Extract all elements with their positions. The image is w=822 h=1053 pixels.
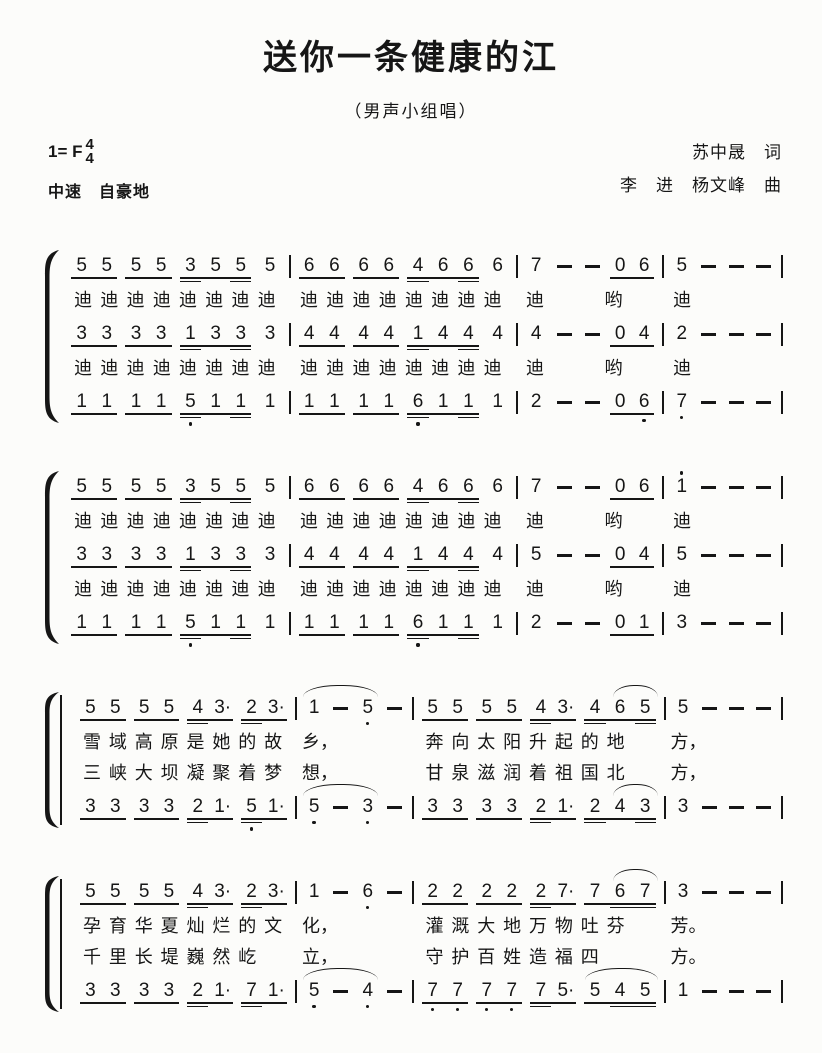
- lyric-syllable: [548, 287, 574, 313]
- beat-group: [725, 612, 748, 634]
- note: 2: [499, 881, 524, 903]
- note: 4: [185, 697, 210, 719]
- beat-group: 55: [132, 697, 182, 719]
- beam-line: [230, 349, 251, 351]
- duration-dash: [725, 255, 748, 277]
- beam-line: [635, 723, 656, 725]
- lyric-syllable: 迪: [522, 355, 548, 381]
- note: 5: [123, 476, 148, 498]
- lyric-syllable: 巍: [183, 944, 209, 970]
- beat-group: 133: [178, 323, 254, 345]
- note: 5: [420, 697, 445, 719]
- note: 4: [431, 323, 456, 345]
- beat-group: [697, 612, 720, 634]
- beat-group: 43·: [185, 697, 235, 719]
- beat-group: 66: [297, 255, 347, 277]
- dash-bar: [729, 990, 744, 993]
- beat-group: 5: [670, 255, 693, 277]
- duration-dash: [698, 881, 721, 903]
- note: 1: [203, 612, 228, 634]
- duration-dash: [552, 391, 576, 413]
- measure: 11116111: [292, 612, 516, 634]
- note: 4: [632, 544, 656, 566]
- beam-line: [407, 413, 479, 415]
- beat-group: 5: [257, 255, 282, 277]
- dash-bar: [585, 333, 600, 336]
- note: 2: [185, 796, 210, 818]
- measure: 5: [665, 255, 780, 277]
- beat-group: 06: [608, 255, 656, 277]
- measure: 333321·243: [415, 796, 663, 818]
- beam-line: [476, 818, 522, 820]
- beat-group: 44: [351, 323, 401, 345]
- beam-line: [241, 818, 287, 820]
- beam-line: [299, 634, 345, 636]
- performance-note: （男声小组唱）: [38, 97, 784, 122]
- beat-group: [752, 881, 775, 903]
- note: 3: [69, 544, 94, 566]
- lyric-syllable: [695, 355, 721, 381]
- barline: [516, 255, 518, 278]
- lyric-syllable: 她: [208, 729, 234, 755]
- beat-group: 22: [474, 881, 524, 903]
- duration-dash: [552, 544, 576, 566]
- note: 5: [203, 255, 228, 277]
- duration-dash: [752, 612, 775, 634]
- note: 6: [405, 612, 430, 634]
- beat-group: 55: [123, 255, 173, 277]
- barline: [781, 612, 783, 635]
- barline: [289, 391, 291, 414]
- lyric-syllable: 迪: [201, 576, 227, 602]
- measure: 206: [519, 391, 661, 413]
- lyric-syllable: 迪: [522, 508, 548, 534]
- beat-group: 611: [405, 612, 481, 634]
- beam-line: [80, 1002, 126, 1004]
- note: 3: [94, 544, 119, 566]
- lyric-syllable: [380, 760, 406, 786]
- lyric-syllable: 大: [131, 760, 157, 786]
- measure: 3: [665, 612, 780, 634]
- lyric-syllable: [722, 287, 748, 313]
- measure: 333321·51·: [73, 796, 294, 818]
- measure: 迪哟: [516, 355, 659, 381]
- beam-line: [476, 903, 522, 905]
- time-denominator: 4: [86, 152, 94, 166]
- note: 5: [633, 980, 658, 1002]
- beat-group: [697, 255, 720, 277]
- lyric-syllable: 太: [473, 729, 499, 755]
- system-start-rule: [60, 879, 62, 1009]
- lyric-syllable: 迪: [480, 355, 506, 381]
- beat-group: 355: [178, 476, 254, 498]
- note: 3: [103, 796, 128, 818]
- measure: 555543·23·: [73, 697, 294, 719]
- note: 4: [351, 323, 376, 345]
- note: 3: [633, 796, 658, 818]
- lyric-syllable: 万: [525, 913, 551, 939]
- note: 7: [499, 980, 524, 1002]
- duration-dash: [383, 980, 406, 1002]
- dash-bar: [702, 806, 717, 809]
- lyric-syllable: 吐: [577, 913, 603, 939]
- lyric-syllable: 迪: [401, 576, 427, 602]
- note: 1: [297, 612, 322, 634]
- dash-bar: [729, 333, 744, 336]
- measure: 方。: [664, 944, 780, 970]
- lyric-syllable: [627, 576, 653, 602]
- beam-line: [241, 719, 287, 721]
- note: 1: [322, 612, 347, 634]
- beam-line: [584, 1002, 655, 1004]
- dash-bar: [333, 707, 348, 710]
- beam-line: [241, 1002, 287, 1004]
- note: 7: [474, 980, 499, 1002]
- note: 5: [257, 476, 282, 498]
- beat-group: 51·: [239, 796, 289, 818]
- key-label: 1= F: [48, 142, 83, 162]
- beat-group: [752, 323, 775, 345]
- lyric-syllable: 迪: [427, 508, 453, 534]
- beam-line: [584, 719, 655, 721]
- beam-line: [407, 349, 428, 351]
- dash-bar: [387, 891, 402, 894]
- note: 5: [69, 476, 94, 498]
- beam-line: [407, 281, 428, 283]
- notes-row: 33331333444414445045: [64, 539, 784, 571]
- beam-line: [180, 638, 201, 640]
- measure: 灌溉大地万物吐芬: [416, 913, 661, 939]
- duration-dash: [725, 881, 748, 903]
- note: 6: [608, 697, 633, 719]
- barline: [412, 796, 414, 819]
- note: 4: [405, 255, 430, 277]
- note: 1: [485, 612, 510, 634]
- beam-line: [530, 818, 576, 820]
- beam-line: [180, 281, 201, 283]
- lyric-syllable: 哟: [601, 355, 627, 381]
- measure: 迪: [663, 287, 780, 313]
- beam-line: [407, 570, 428, 572]
- duration-dash: [580, 391, 604, 413]
- measure: 迪哟: [516, 508, 659, 534]
- note: 1: [149, 612, 174, 634]
- beat-group: [698, 980, 721, 1002]
- beam-line: [241, 723, 262, 725]
- note: 3: [123, 323, 148, 345]
- lyric-syllable: 迪: [149, 287, 175, 313]
- note: 1: [257, 612, 282, 634]
- lyric-syllable: 四: [577, 944, 603, 970]
- barline: [295, 881, 297, 904]
- lyric-syllable: 芬: [603, 913, 629, 939]
- beat-group: 66: [351, 255, 401, 277]
- duration-dash: [698, 980, 721, 1002]
- note: 1: [303, 697, 326, 719]
- beat-group: 3: [672, 881, 695, 903]
- lyric-syllable: 迪: [480, 287, 506, 313]
- duration-dash: [697, 323, 720, 345]
- composer-credit: 李 进 杨文峰 曲: [620, 169, 782, 202]
- lyric-syllable: 迪: [122, 287, 148, 313]
- measure: 706: [519, 476, 661, 498]
- beam-line: [71, 498, 117, 500]
- beat-group: 6: [356, 881, 379, 903]
- dash-bar: [729, 554, 744, 557]
- measure: 雪域高原是她的故: [73, 729, 292, 755]
- barline: [781, 980, 783, 1003]
- note: 5: [356, 697, 379, 719]
- note: 3: [94, 323, 119, 345]
- beat-group: 5: [672, 697, 695, 719]
- beam-line: [180, 634, 252, 636]
- beat-group: 3: [356, 796, 379, 818]
- lyric-syllable: [627, 287, 653, 313]
- key-tempo-block: 1= F 4 4 中速 自豪地: [48, 138, 150, 202]
- beat-group: [752, 544, 775, 566]
- beam-line: [80, 903, 126, 905]
- measure: 迪迪迪迪迪迪迪迪: [290, 355, 512, 381]
- beat-group: 11: [297, 391, 347, 413]
- lyric-syllable: 迪: [96, 576, 122, 602]
- note: 5: [178, 391, 203, 413]
- lyric-syllable: 向: [447, 729, 473, 755]
- lyric-syllable: 方，: [670, 760, 696, 786]
- dash-bar: [756, 486, 771, 489]
- beat-group: 55: [69, 476, 119, 498]
- barline: [664, 796, 666, 819]
- note: 4: [456, 544, 481, 566]
- beat-group: 466: [405, 255, 481, 277]
- note: 2: [474, 881, 499, 903]
- voice-bracket-icon: [38, 471, 60, 644]
- beam-line: [610, 907, 656, 909]
- system: 55553555666646667061迪迪迪迪迪迪迪迪迪迪迪迪迪迪迪迪迪哟迪3…: [38, 471, 784, 644]
- measure: 迪哟: [516, 287, 659, 313]
- lyric-syllable: 乡，: [302, 729, 328, 755]
- beat-group: 55: [78, 697, 128, 719]
- note: 6: [351, 476, 376, 498]
- beam-line: [187, 719, 233, 721]
- dash-bar: [585, 265, 600, 268]
- note: 1: [149, 391, 174, 413]
- note: 1: [351, 391, 376, 413]
- lyric-syllable: 方。: [670, 944, 696, 970]
- lyric-syllable: 迪: [227, 508, 253, 534]
- note: 1: [123, 612, 148, 634]
- lyric-syllable: [722, 944, 748, 970]
- note: 3: [132, 796, 157, 818]
- duration-dash: [552, 323, 576, 345]
- barline: [781, 323, 783, 346]
- lyric-syllable: [629, 760, 655, 786]
- lyric-syllable: 化，: [302, 913, 328, 939]
- note: 1: [69, 612, 94, 634]
- beam-line: [584, 818, 655, 820]
- note: 1: [94, 391, 119, 413]
- system-content: 555543·23·16222227·7673孕育华夏灿烂的文化，灌溉大地万物吐…: [73, 876, 784, 1012]
- barline: [289, 612, 291, 635]
- beat-group: [725, 697, 748, 719]
- measure: 奔向太阳升起的地: [416, 729, 661, 755]
- note: 2: [420, 881, 445, 903]
- beat-group: 04: [608, 323, 656, 345]
- dash-bar: [557, 486, 572, 489]
- measure: 迪: [663, 355, 780, 381]
- beat-group: 465: [582, 697, 657, 719]
- duration-dash: [552, 255, 576, 277]
- lyric-syllable: [696, 913, 722, 939]
- beam-line: [299, 345, 345, 347]
- duration-dash: [725, 697, 748, 719]
- beat-group: [725, 796, 748, 818]
- lyric-syllable: 迪: [122, 355, 148, 381]
- lyric-syllable: 迪: [96, 287, 122, 313]
- lyric-syllable: 故: [260, 729, 286, 755]
- dash-bar: [585, 401, 600, 404]
- note: 4: [632, 323, 656, 345]
- note: 3: [78, 980, 103, 1002]
- lyric-syllable: [574, 355, 600, 381]
- note: 3·: [553, 697, 578, 719]
- measure: 1: [665, 476, 780, 498]
- beat-group: 44: [297, 544, 347, 566]
- beat-group: 33: [78, 796, 128, 818]
- beat-group: 43·: [528, 697, 578, 719]
- lyric-syllable: [380, 729, 406, 755]
- barline: [781, 544, 783, 567]
- measure: 甘泉滋润着祖国北: [416, 760, 661, 786]
- lyric-syllable: [695, 287, 721, 313]
- beat-group: 5: [257, 476, 282, 498]
- duration-dash: [725, 980, 748, 1002]
- barline: [664, 697, 666, 720]
- dash-bar: [702, 990, 717, 993]
- note: 1: [228, 612, 253, 634]
- note: 1·: [264, 796, 289, 818]
- note: 1: [303, 881, 326, 903]
- note: 7: [633, 881, 658, 903]
- rest: 0: [608, 255, 632, 277]
- lyric-syllable: 迪: [70, 287, 96, 313]
- beam-line: [610, 566, 654, 568]
- dash-bar: [701, 333, 716, 336]
- measure: 53: [298, 796, 411, 818]
- beam-line: [187, 1006, 208, 1008]
- beam-line: [230, 281, 251, 283]
- lyric-syllable: [695, 508, 721, 534]
- beat-group: 5: [303, 980, 326, 1002]
- beat-group: 71·: [239, 980, 289, 1002]
- note: 3: [499, 796, 524, 818]
- note: 2: [582, 796, 607, 818]
- duration-dash: [725, 544, 748, 566]
- measure: 55553555: [64, 476, 288, 498]
- beam-line: [476, 719, 522, 721]
- beat-group: [725, 476, 748, 498]
- note: 3: [672, 881, 695, 903]
- beam-line: [530, 822, 551, 824]
- lyrics-row: 迪迪迪迪迪迪迪迪迪迪迪迪迪迪迪迪迪哟迪: [64, 355, 784, 381]
- dash-bar: [756, 806, 771, 809]
- beat-group: 43·: [185, 881, 235, 903]
- beat-group: 355: [178, 255, 254, 277]
- lyric-syllable: 迪: [149, 355, 175, 381]
- duration-dash: [698, 697, 721, 719]
- lyric-syllable: 迪: [669, 508, 695, 534]
- lyric-syllable: [748, 287, 774, 313]
- beam-line: [125, 345, 171, 347]
- lyric-syllable: 地: [499, 913, 525, 939]
- note: 6: [485, 255, 510, 277]
- beam-line: [230, 638, 251, 640]
- barline: [781, 476, 783, 499]
- duration-dash: [697, 612, 720, 634]
- note: 5: [78, 697, 103, 719]
- note: 3: [178, 476, 203, 498]
- beam-line: [241, 1006, 262, 1008]
- beat-group: 55: [132, 881, 182, 903]
- note: 6: [632, 476, 656, 498]
- beat-group: 44: [351, 544, 401, 566]
- note: 1: [485, 391, 510, 413]
- beam-line: [407, 634, 479, 636]
- lyric-syllable: 屹: [234, 944, 260, 970]
- system-content: 555543·23·15555543·4655雪域高原是她的故乡，奔向太阳升起的…: [73, 692, 784, 828]
- beat-group: [725, 881, 748, 903]
- note: 3·: [264, 881, 289, 903]
- note: 3: [149, 544, 174, 566]
- measure: 守护百姓造福四: [416, 944, 661, 970]
- beam-line: [187, 818, 233, 820]
- slur-arc: [303, 968, 378, 980]
- note: 3·: [264, 697, 289, 719]
- lyric-syllable: 迪: [375, 508, 401, 534]
- beat-group: 33: [132, 796, 182, 818]
- note: 4: [376, 323, 401, 345]
- barline: [662, 476, 664, 499]
- measure: 15: [298, 697, 411, 719]
- lyric-syllable: 迪: [401, 355, 427, 381]
- beat-group: 511: [178, 612, 254, 634]
- beat-group: 77: [474, 980, 524, 1002]
- dash-bar: [585, 486, 600, 489]
- note: 3: [132, 980, 157, 1002]
- barline: [662, 255, 664, 278]
- beam-line: [530, 903, 576, 905]
- beam-line: [422, 719, 468, 721]
- beam-line: [476, 1002, 522, 1004]
- duration-dash: [552, 476, 576, 498]
- beat-group: 55: [123, 476, 173, 498]
- measure: 迪: [663, 508, 780, 534]
- beat-group: 22: [420, 881, 470, 903]
- lyric-syllable: 迪: [201, 508, 227, 534]
- note: 7: [528, 980, 553, 1002]
- note: 7·: [553, 881, 578, 903]
- dash-bar: [387, 806, 402, 809]
- notes-row: 55553555666646667065: [64, 250, 784, 282]
- lyrics-row: 孕育华夏灿烂的文化，灌溉大地万物吐芬芳。: [73, 913, 784, 939]
- note: 5: [445, 697, 470, 719]
- beat-group: 1: [670, 476, 693, 498]
- beam-line: [530, 907, 551, 909]
- measure: 44441444: [292, 544, 516, 566]
- dash-bar: [729, 707, 744, 710]
- beat-group: 767: [582, 881, 657, 903]
- lyric-syllable: 哟: [601, 508, 627, 534]
- beat-group: [330, 881, 353, 903]
